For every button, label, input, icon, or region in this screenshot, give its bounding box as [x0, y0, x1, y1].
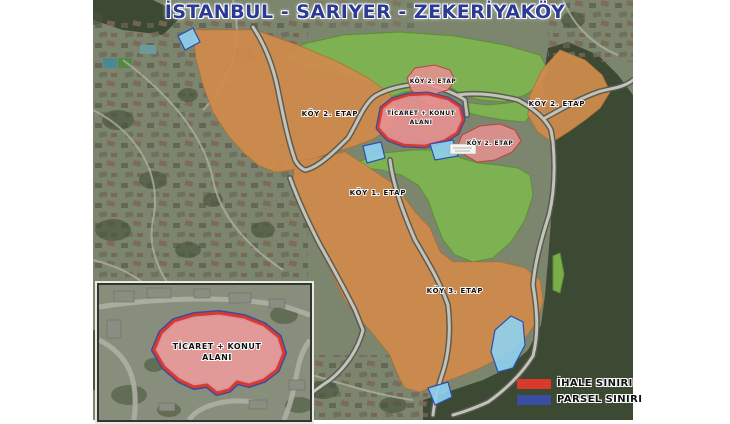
page-title: İSTANBUL - SARIYER - ZEKERİYAKÖY [0, 1, 730, 23]
inset-label-line2: ALANI [202, 353, 232, 362]
inset-svg: TİCARET + KONUT ALANI [99, 285, 310, 420]
label-ticaret-konut-line1: TİCARET + KONUT [387, 110, 456, 117]
label-koy-2-etap-north-pink: KÖY 2. ETAP [410, 78, 457, 85]
label-koy-3-etap: KÖY 3. ETAP [427, 286, 484, 295]
label-koy-2-etap-east: KÖY 2. ETAP [529, 99, 586, 108]
legend: İHALE SINIRI PARSEL SINIRI [517, 378, 642, 410]
inset-detail-map: TİCARET + KONUT ALANI [97, 283, 312, 422]
inset-label-line1: TİCARET + KONUT [173, 341, 262, 351]
label-ticaret-konut-line2: ALANI [410, 119, 433, 126]
label-koy-2-etap-east-pink: KÖY 2. ETAP [467, 140, 514, 147]
parsel-color-swatch [517, 395, 551, 405]
legend-row-parsel: PARSEL SINIRI [517, 394, 642, 405]
label-koy-1-etap: KÖY 1. ETAP [350, 188, 407, 197]
legend-row-ihale: İHALE SINIRI [517, 378, 642, 389]
ihale-color-swatch [517, 379, 551, 389]
label-koy-2-etap-west: KÖY 2. ETAP [302, 109, 359, 118]
legend-label-ihale: İHALE SINIRI [557, 378, 633, 389]
legend-label-parsel: PARSEL SINIRI [557, 394, 642, 405]
